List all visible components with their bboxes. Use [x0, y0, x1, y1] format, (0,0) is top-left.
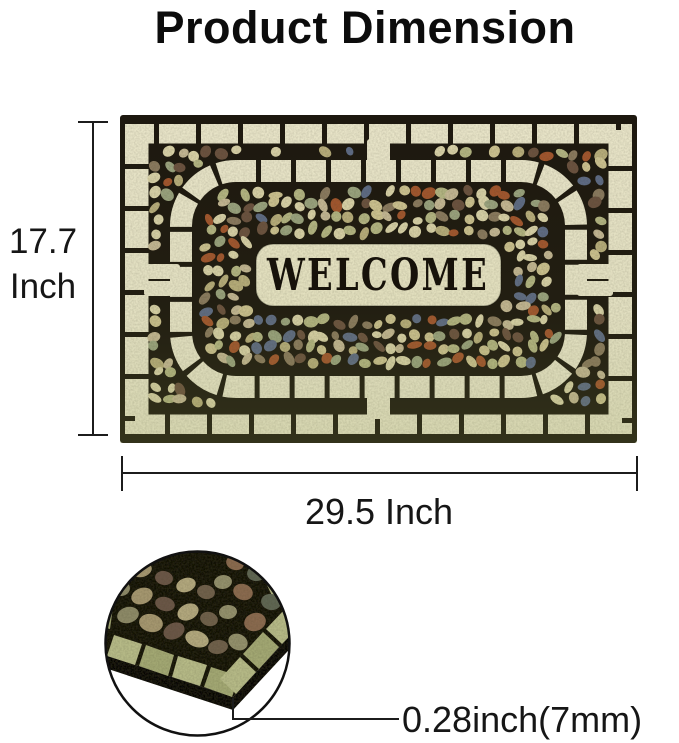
- width-line: [121, 472, 638, 474]
- height-value: 17.7: [0, 219, 86, 264]
- width-label: 29.5 Inch: [121, 491, 637, 533]
- width-cap-right: [636, 456, 638, 491]
- height-line: [92, 122, 94, 435]
- height-label: 17.7 Inch: [0, 219, 86, 309]
- mat-corner-cross-section: [102, 548, 293, 710]
- thickness-detail-bubble: [102, 548, 293, 739]
- page-title: Product Dimension: [48, 2, 679, 54]
- height-cap-bottom: [78, 434, 108, 436]
- doormat-photo: WELCOME: [120, 115, 637, 443]
- leader-line-vertical: [232, 698, 234, 720]
- thickness-label: 0.28inch(7mm): [402, 699, 642, 741]
- welcome-text: WELCOME: [266, 250, 489, 301]
- leader-line-horizontal: [232, 718, 399, 720]
- height-unit: Inch: [0, 264, 86, 309]
